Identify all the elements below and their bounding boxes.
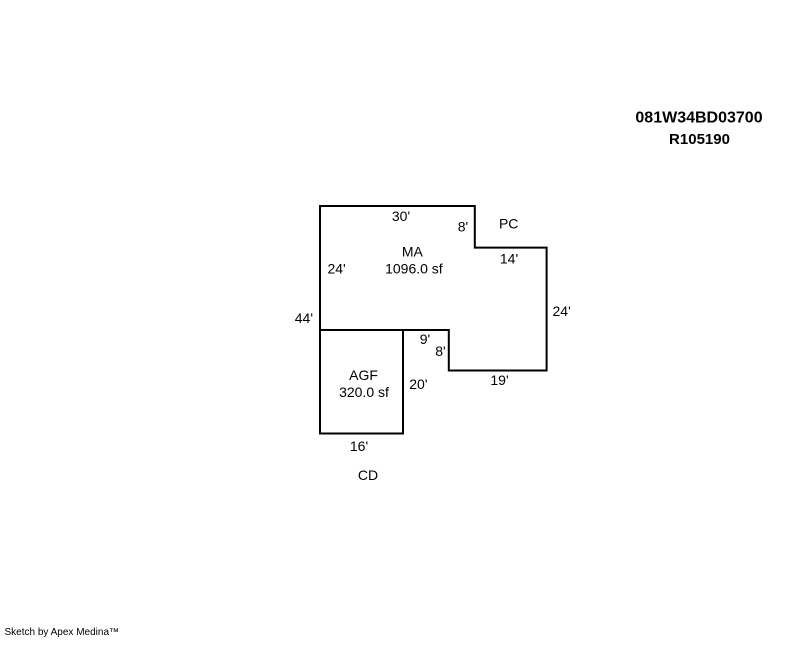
svg-text:9': 9' [420, 331, 430, 347]
svg-text:24': 24' [553, 303, 571, 319]
svg-text:8': 8' [435, 343, 445, 359]
svg-text:24': 24' [327, 260, 345, 276]
svg-text:14': 14' [500, 251, 518, 267]
svg-text:30': 30' [392, 208, 410, 224]
svg-text:320.0 sf: 320.0 sf [339, 384, 389, 400]
svg-text:081W34BD03700: 081W34BD03700 [635, 110, 762, 127]
svg-text:MA: MA [402, 244, 424, 260]
svg-text:16': 16' [350, 438, 368, 454]
svg-text:19': 19' [490, 372, 508, 388]
svg-text:8': 8' [458, 219, 468, 235]
svg-text:AGF: AGF [349, 367, 378, 383]
svg-text:1096.0 sf: 1096.0 sf [385, 260, 443, 276]
svg-text:CD: CD [358, 467, 378, 483]
svg-text:44': 44' [295, 310, 313, 326]
svg-text:PC: PC [499, 216, 518, 232]
svg-text:20': 20' [409, 376, 427, 392]
svg-text:Sketch by Apex Medina™: Sketch by Apex Medina™ [5, 627, 120, 638]
svg-text:R105190: R105190 [669, 131, 730, 148]
